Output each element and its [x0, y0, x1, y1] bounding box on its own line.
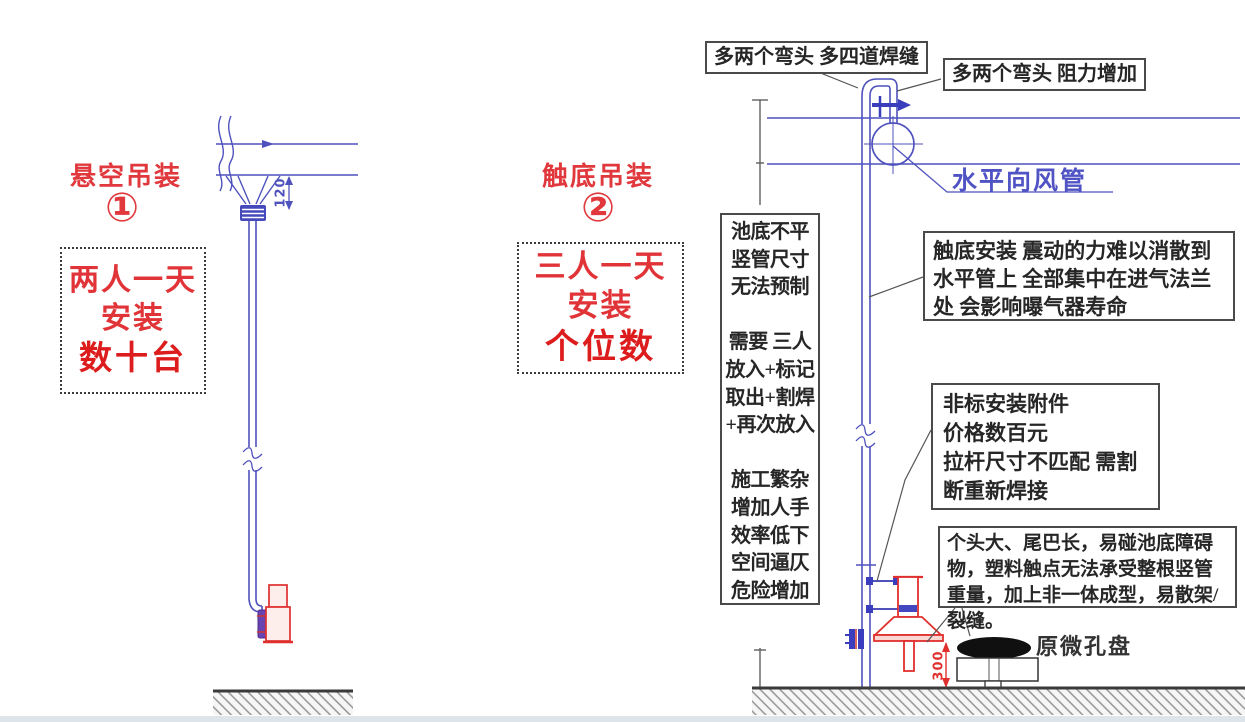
callout-extra-elbows-resistance: 多两个弯头 阻力增加 [943, 58, 1146, 91]
flow-arrow-icon [262, 140, 274, 148]
method2-summary-line: 个位数 [545, 326, 656, 369]
method1-summary-line: 安装 [101, 300, 165, 338]
method2-summary-box: 三人一天 安装 个位数 [517, 242, 684, 374]
issues-line-blank [722, 302, 818, 330]
issues-line: +再次放入 [722, 412, 818, 440]
method1-summary-line: 两人一天 [69, 262, 197, 300]
issues-line: 需要 三人 [722, 329, 818, 357]
method1-summary-box: 两人一天 安装 数十台 [60, 247, 206, 394]
issues-line: 效率低下 [722, 523, 818, 551]
nonstandard-line: 非标安装附件 [943, 390, 1148, 419]
method2-summary-line: 三人一天 [535, 248, 667, 287]
issues-line: 危险增加 [722, 578, 818, 606]
callout-bulky-note: 个头大、尾巴长，易碰池底障碍物，塑料触点无法承受整根竖管重量，加上非一体成型，易… [938, 526, 1237, 608]
left-drop-pipe [243, 221, 262, 613]
dim-120-label: 120 [274, 177, 289, 207]
issues-line-blank [722, 440, 818, 468]
issues-line: 增加人手 [722, 495, 818, 523]
callout-nonstandard-parts: 非标安装附件 价格数百元 拉杆尺寸不匹配 需割 断重新焊接 [931, 383, 1160, 510]
bottom-edge-strip [0, 716, 1245, 722]
issues-line: 池底不平 [722, 219, 818, 247]
air-valve-arrow-icon [872, 96, 911, 117]
method1-summary-line: 数十台 [79, 337, 187, 378]
issues-line: 竖管尺寸 [722, 247, 818, 275]
issues-line: 放入+标记 [722, 357, 818, 385]
micro-disc-label: 原微孔盘 [1036, 629, 1132, 661]
callout-extra-elbows-welds: 多两个弯头 多四道焊缝 [705, 41, 928, 74]
left-ground [213, 691, 353, 715]
method2-summary-line: 安装 [568, 287, 634, 326]
nonstandard-line: 断重新焊接 [943, 477, 1148, 506]
issues-line: 取出+割焊 [722, 385, 818, 413]
right-duct [767, 118, 1240, 164]
issues-line: 空间逼仄 [722, 550, 818, 578]
issues-line: 无法预制 [722, 274, 818, 302]
dim-300-label: 300 [932, 650, 947, 680]
left-pipe-coupling [240, 205, 266, 221]
nonstandard-line: 价格数百元 [943, 419, 1148, 448]
riser-inlet-flange [845, 629, 864, 649]
left-hanger-funnel [226, 176, 280, 204]
tie-rods [866, 577, 899, 613]
method2-number: ② [542, 188, 654, 228]
comparison-diagram-canvas: 悬空吊装 ① 两人一天 安装 数十台 触底吊装 ② 三人一天 安装 个位数 池底… [0, 0, 1245, 722]
micro-disc-assembly [957, 637, 1038, 688]
nonstandard-line: 拉杆尺寸不匹配 需割 [943, 448, 1148, 477]
callout-vibration-note: 触底安装 震动的力难以消散到水平管上 全部集中在进气法兰处 会影响曝气器寿命 [923, 231, 1235, 321]
issues-line: 施工繁杂 [722, 467, 818, 495]
horizontal-duct-label: 水平向风管 [952, 161, 1087, 197]
right-riser-pipe [856, 79, 897, 688]
issues-panel: 池底不平 竖管尺寸 无法预制 需要 三人 放入+标记 取出+割焊 +再次放入 施… [720, 213, 820, 605]
method1-number: ① [70, 188, 174, 228]
right-ground [752, 688, 1245, 715]
left-diffuser [263, 585, 293, 642]
